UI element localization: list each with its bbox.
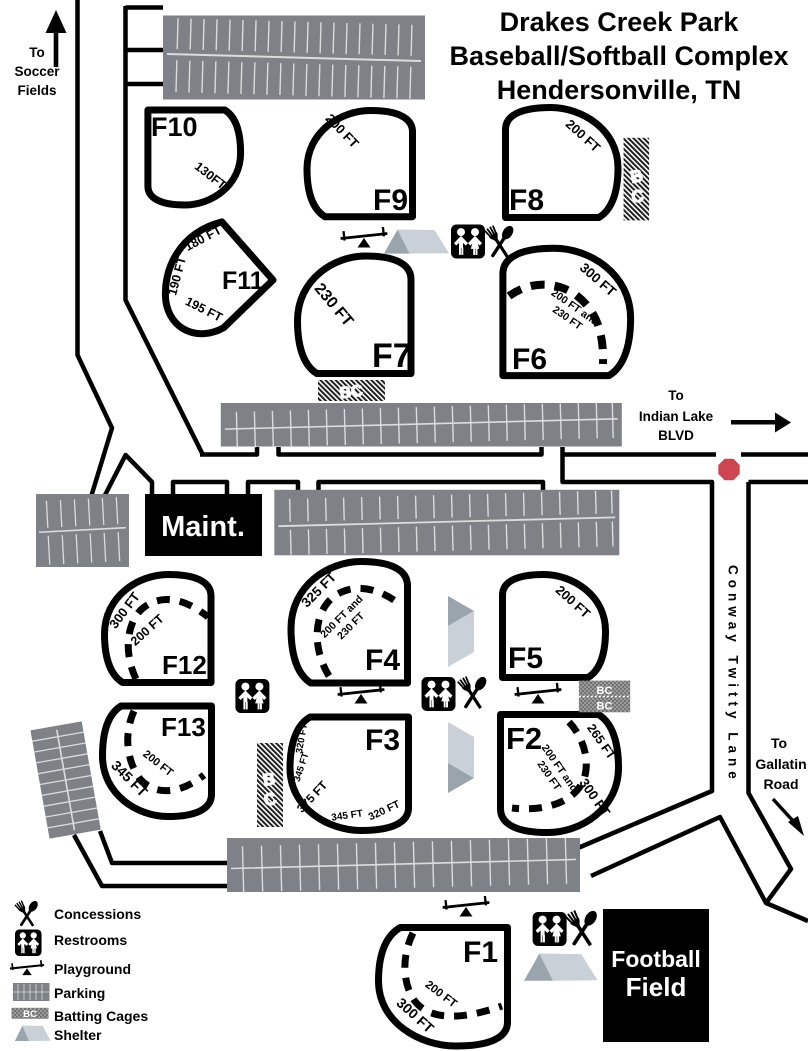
svg-text:F1: F1 <box>463 936 498 969</box>
svg-text:Baseball/Softball Complex: Baseball/Softball Complex <box>449 41 788 71</box>
svg-text:Road: Road <box>764 776 799 792</box>
svg-text:To: To <box>771 735 787 751</box>
svg-text:Indian Lake: Indian Lake <box>639 409 714 424</box>
svg-text:Restrooms: Restrooms <box>54 932 127 948</box>
svg-text:To: To <box>29 45 45 60</box>
svg-text:Conway Twitty Lane: Conway Twitty Lane <box>726 565 741 784</box>
svg-text:F11: F11 <box>222 267 264 295</box>
svg-text:F9: F9 <box>373 184 408 217</box>
svg-text:F5: F5 <box>508 642 543 675</box>
svg-text:Drakes Creek Park: Drakes Creek Park <box>500 7 740 37</box>
svg-text:Gallatin: Gallatin <box>755 756 806 772</box>
svg-text:F3: F3 <box>365 724 400 757</box>
svg-text:Shelter: Shelter <box>54 1027 102 1043</box>
svg-text:F6: F6 <box>512 343 547 376</box>
svg-text:Parking: Parking <box>54 985 105 1001</box>
svg-text:Concessions: Concessions <box>54 906 141 922</box>
svg-text:To: To <box>668 388 684 403</box>
svg-text:Field: Field <box>626 972 687 1002</box>
svg-text:F2: F2 <box>506 721 542 756</box>
svg-text:F7: F7 <box>372 337 412 375</box>
svg-text:F12: F12 <box>162 650 207 680</box>
svg-text:F13: F13 <box>161 712 206 742</box>
svg-text:Hendersonville, TN: Hendersonville, TN <box>497 75 742 105</box>
svg-text:Batting Cages: Batting Cages <box>54 1008 148 1024</box>
svg-text:F4: F4 <box>365 644 400 677</box>
svg-text:BC: BC <box>597 701 613 713</box>
svg-text:BC: BC <box>23 1009 37 1020</box>
svg-text:Maint.: Maint. <box>161 511 245 543</box>
svg-text:F10: F10 <box>151 112 198 142</box>
svg-text:Fields: Fields <box>17 83 56 98</box>
svg-text:BC: BC <box>339 382 365 402</box>
svg-text:Soccer: Soccer <box>14 64 60 79</box>
svg-text:F8: F8 <box>509 184 544 217</box>
svg-text:BC: BC <box>597 685 613 697</box>
svg-text:BLVD: BLVD <box>658 428 694 443</box>
svg-text:Football: Football <box>611 946 700 972</box>
svg-text:Playground: Playground <box>54 961 131 977</box>
